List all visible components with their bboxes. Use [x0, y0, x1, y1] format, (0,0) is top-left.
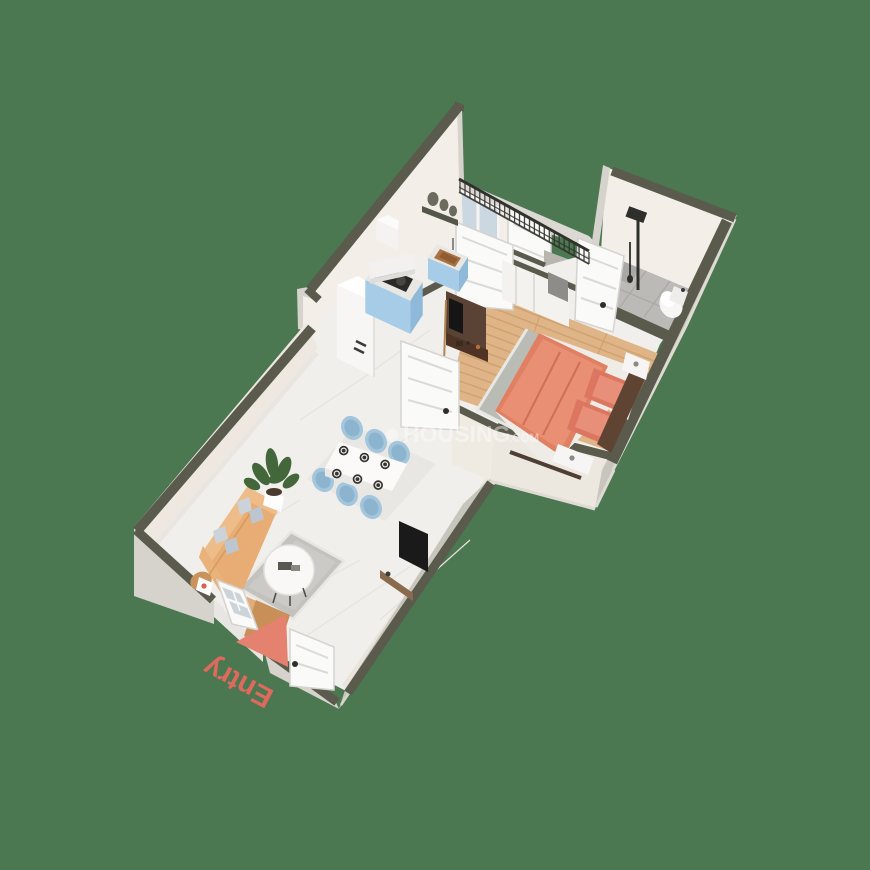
svg-text:HOUSING: HOUSING: [403, 421, 510, 447]
svg-text:.COM: .COM: [509, 433, 539, 445]
svg-text:✺: ✺: [385, 426, 399, 445]
